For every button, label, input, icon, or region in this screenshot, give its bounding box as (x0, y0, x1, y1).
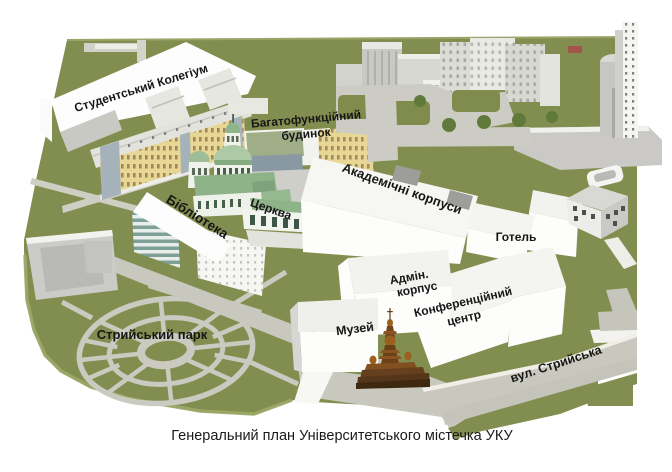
svg-text:Стрийський парк: Стрийський парк (97, 327, 208, 342)
svg-text:Готель: Готель (496, 230, 537, 244)
svg-text:Генеральний план Університетсь: Генеральний план Університетського місте… (171, 428, 513, 444)
